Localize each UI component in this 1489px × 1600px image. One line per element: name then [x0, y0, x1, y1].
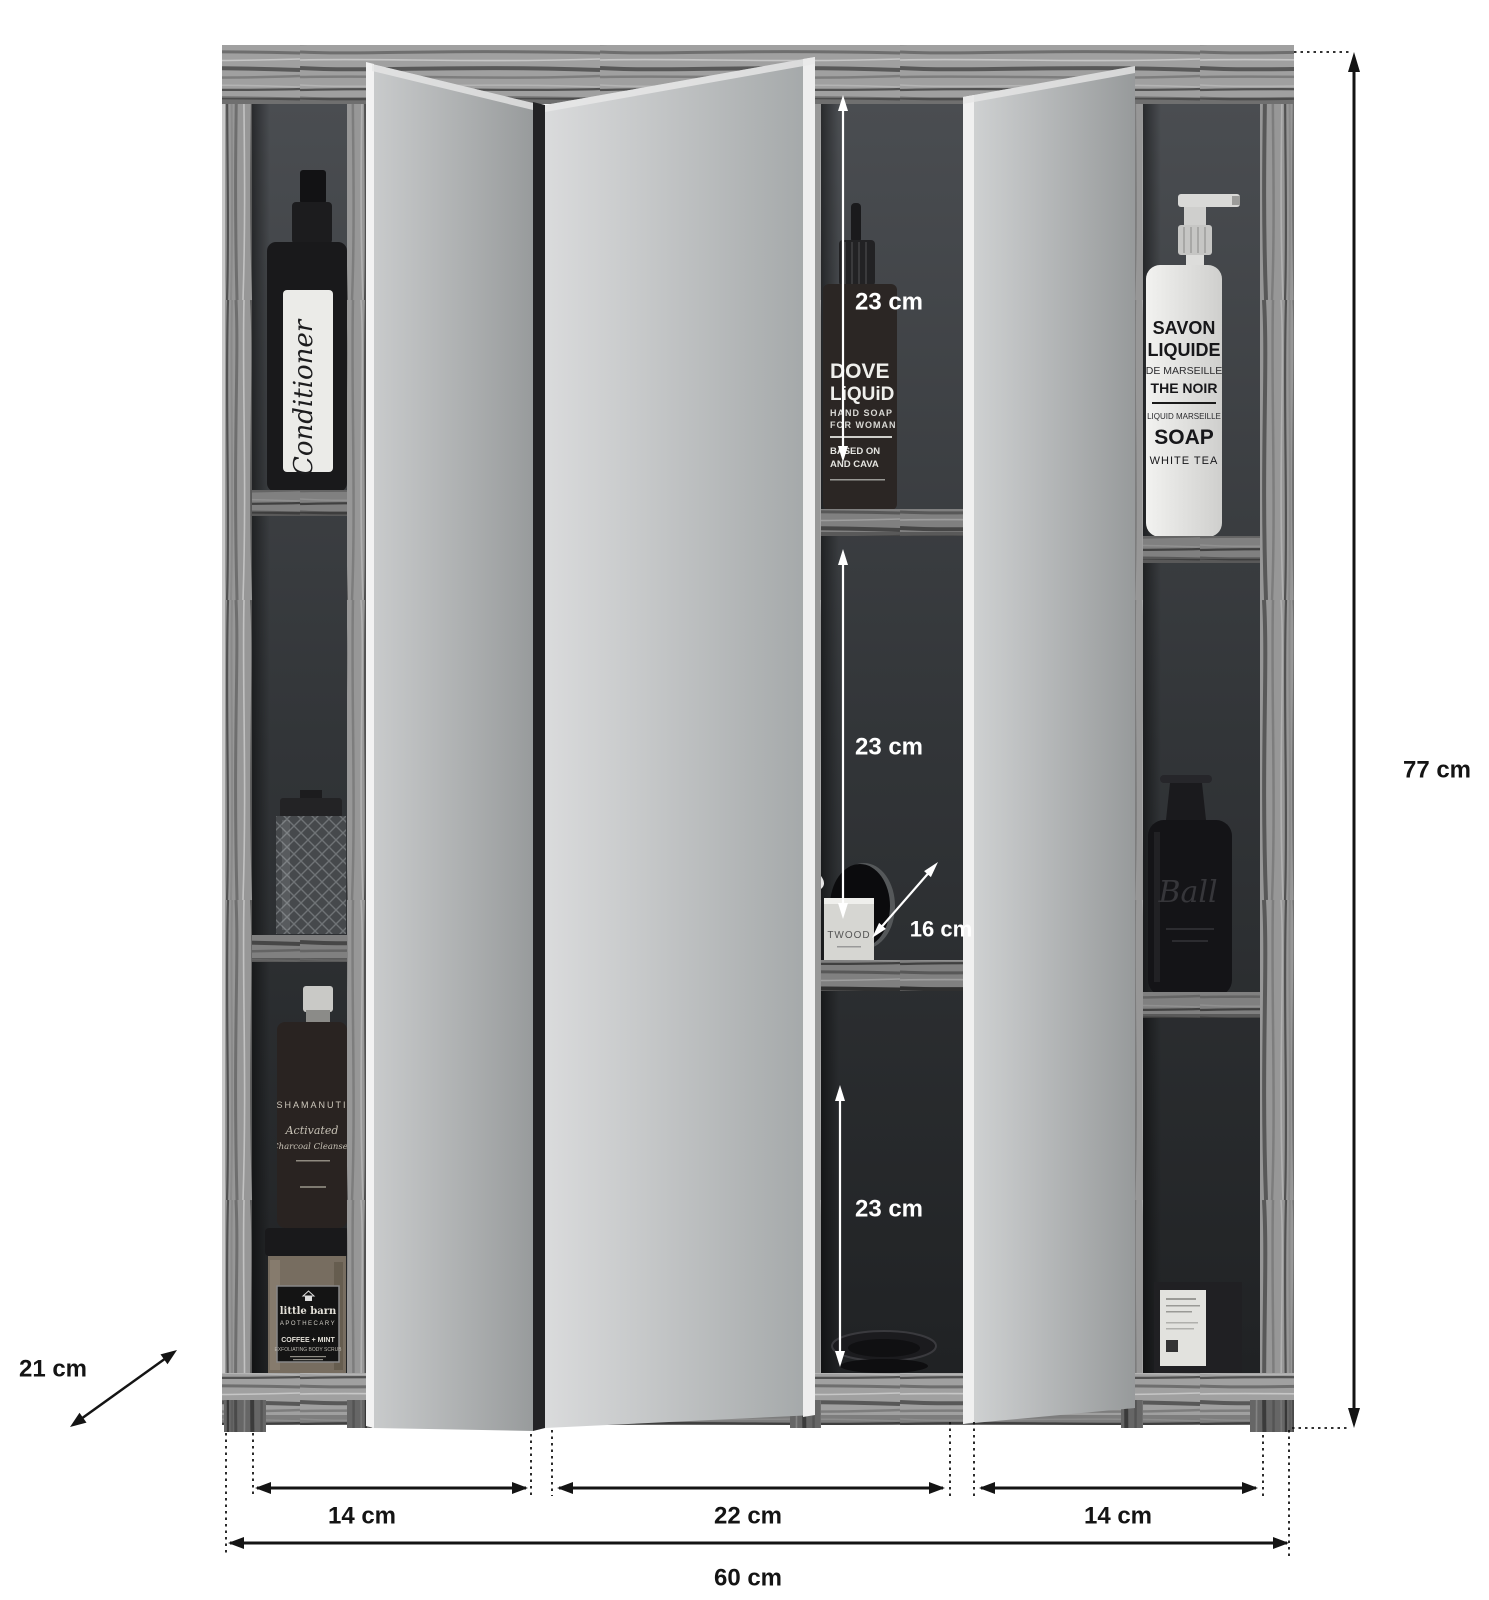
bottle-rim: [1160, 775, 1212, 783]
frame-left: [222, 104, 252, 1373]
scrub-fineprint2: [293, 1359, 323, 1360]
bottle-line1: [1166, 928, 1214, 930]
dish-base: [840, 1359, 928, 1373]
candle-label-line: [837, 946, 861, 948]
center-mirror-door: [545, 57, 815, 1428]
dim-total-width: 60 cm: [228, 1537, 1289, 1592]
arrow-left-icon: [228, 1537, 244, 1549]
box-label-mark: [1166, 1340, 1178, 1352]
scrub-line1: little barn: [280, 1306, 337, 1317]
right-door-edge: [963, 95, 974, 1424]
soap-line1: SAVON: [1153, 318, 1216, 338]
pump-shaft: [1184, 207, 1206, 225]
cabinet-diagram-svg: Conditioner SHAMANUTI Activated Charcoal…: [0, 0, 1489, 1600]
dim-left-door-label: 14 cm: [328, 1503, 396, 1530]
scrub-fineprint1: [290, 1356, 326, 1357]
scrub-line3: COFFEE + MINT: [281, 1337, 335, 1344]
middle-shelf-2: [821, 960, 963, 991]
dim-center-door: 22 cm: [557, 1482, 945, 1530]
dropper-fineprint: [830, 479, 885, 481]
left-shelf-2: [252, 935, 347, 962]
arrow-right-icon: [929, 1482, 945, 1494]
cleanser-cap: [303, 986, 333, 1012]
box-label-line1: [1166, 1298, 1196, 1300]
bottle-neck2: [1166, 783, 1206, 820]
soap-line5: LIQUID MARSEILLE: [1147, 412, 1221, 421]
dim-center-door-label: 22 cm: [714, 1503, 782, 1530]
pump-head: [300, 170, 326, 204]
candle-rim: [824, 898, 874, 904]
dim-depth-label: 21 cm: [19, 1356, 87, 1383]
scrub-line4: EXFOLIATING BODY SCRUB: [274, 1347, 342, 1353]
glass-candle-jar: [276, 790, 346, 934]
dropper-rule: [830, 436, 892, 438]
scrub-lid: [265, 1228, 349, 1256]
cleanser-line1: SHAMANUTI: [276, 1100, 347, 1110]
soap-line2: LIQUIDE: [1147, 340, 1220, 360]
dim-depth: 21 cm: [19, 1350, 177, 1427]
black-dish: [832, 1331, 936, 1373]
box-label-line4: [1166, 1322, 1198, 1324]
dropper-line4: FOR WOMAN: [830, 420, 897, 430]
soap-line7: WHITE TEA: [1150, 455, 1219, 467]
middle-shelf-1: [821, 509, 963, 536]
left-shelf-1: [252, 490, 347, 516]
frame-left-highlight: [222, 104, 225, 1373]
right-shelf-1: [1143, 536, 1260, 563]
cleanser-fineprint: [300, 1186, 326, 1188]
dim-compartment-top-label: 23 cm: [855, 289, 923, 316]
jar-lid: [280, 798, 342, 818]
arrow-diagonal-icon: [161, 1350, 178, 1364]
black-box: [1154, 1282, 1242, 1374]
left-door-edge: [366, 62, 374, 1428]
pump-cap: [292, 202, 332, 244]
dropper-line5: BASED ON: [830, 446, 880, 457]
right-shelf-2: [1143, 992, 1260, 1018]
pump-tip: [1232, 196, 1240, 205]
bottle-line2: [1172, 940, 1208, 942]
soap-line6: SOAP: [1154, 426, 1214, 449]
black-bottle-label: Ball: [1157, 875, 1217, 910]
dim-cutout-label: 16 cm: [910, 917, 972, 942]
arrow-right-icon: [1273, 1537, 1289, 1549]
product-diagram: Conditioner SHAMANUTI Activated Charcoal…: [0, 0, 1489, 1600]
cleanser-line3: Charcoal Cleanser: [272, 1142, 353, 1152]
arrow-left-icon: [557, 1482, 573, 1494]
candle-label-text: TWOOD: [827, 930, 870, 941]
soap-rule: [1152, 402, 1216, 404]
box-label-line3: [1166, 1311, 1192, 1313]
dropper-line6: AND CAVA: [830, 459, 879, 470]
arrow-left-icon: [255, 1482, 271, 1494]
dropper-line1: DOVE: [830, 360, 890, 383]
jar-highlight: [282, 820, 290, 930]
dim-right-door-label: 14 cm: [1084, 1503, 1152, 1530]
dim-left-door: 14 cm: [255, 1482, 528, 1530]
body-scrub-jar: little barn APOTHECARY COFFEE + MINT EXF…: [265, 1228, 349, 1374]
arrow-right-icon: [1242, 1482, 1258, 1494]
soap-body: [1146, 265, 1222, 537]
cleanser-rule: [296, 1160, 330, 1162]
arrow-diagonal-icon: [70, 1413, 87, 1427]
mirror-doors: [366, 57, 1135, 1431]
pump-arm: [1178, 194, 1240, 207]
dim-compartment-middle-label: 23 cm: [855, 734, 923, 761]
cleanser-line2: Activated: [285, 1124, 339, 1137]
dropper-line2: LiQUiD: [830, 384, 894, 405]
house-icon-base: [305, 1296, 312, 1301]
dim-height: 77 cm: [1292, 52, 1471, 1428]
arrow-up-icon: [1348, 52, 1360, 72]
dim-height-label: 77 cm: [1403, 757, 1471, 784]
door-fold-seam: [533, 102, 545, 1431]
dish-inner: [848, 1339, 920, 1357]
box-label-line2: [1166, 1305, 1200, 1307]
right-mirror-door: [963, 66, 1135, 1424]
scrub-line2: APOTHECARY: [280, 1321, 336, 1327]
frame-right: [1260, 104, 1294, 1373]
dropper-line3: HAND SOAP: [830, 408, 893, 418]
dim-compartment-bottom-label: 23 cm: [855, 1196, 923, 1223]
soap-line4: THE NOIR: [1151, 380, 1218, 396]
box-label-line5: [1166, 1328, 1194, 1330]
arrow-right-icon: [512, 1482, 528, 1494]
charcoal-cleanser-bottle: SHAMANUTI Activated Charcoal Cleanser: [272, 986, 353, 1228]
dropper-pipette: [851, 203, 861, 243]
arrow-down-icon: [1348, 1408, 1360, 1428]
cleanser-collar: [306, 1010, 330, 1024]
left-mirror-door: [372, 64, 533, 1431]
dim-total-width-label: 60 cm: [714, 1565, 782, 1592]
soap-line3: DE MARSEILLE: [1146, 365, 1222, 377]
dim-right-door: 14 cm: [979, 1482, 1258, 1530]
arrow-left-icon: [979, 1482, 995, 1494]
conditioner-label-text: Conditioner: [289, 318, 319, 476]
center-door-edge: [803, 57, 815, 1417]
